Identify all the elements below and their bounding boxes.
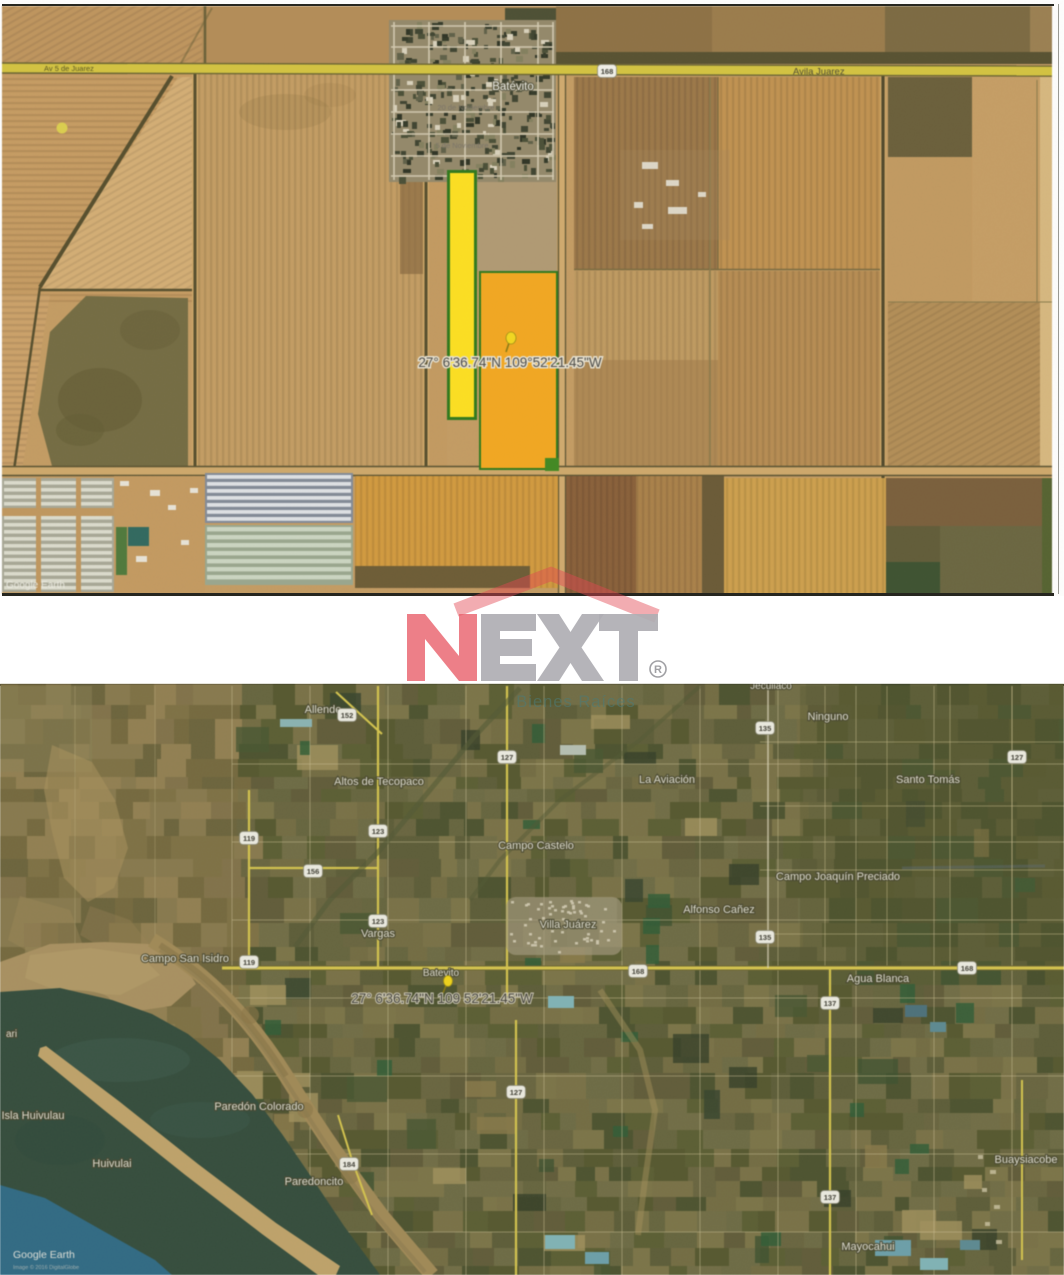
- svg-text:R: R: [654, 664, 662, 676]
- svg-text:Bienes Raíces: Bienes Raíces: [516, 693, 635, 711]
